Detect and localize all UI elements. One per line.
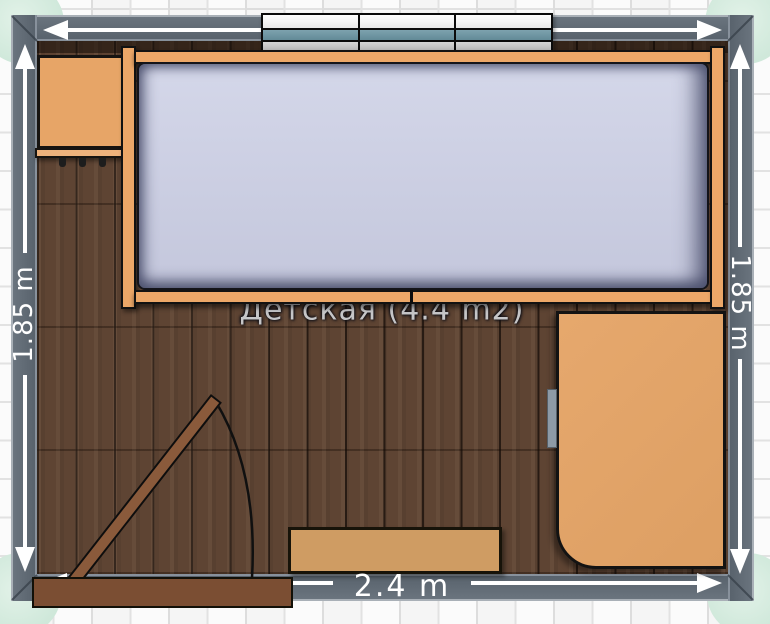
bed-mattress [137,62,709,290]
dimension-label-left: 1.85 m [9,265,39,362]
bed[interactable] [121,46,725,309]
shelf-cell [360,15,455,28]
wardrobe[interactable] [556,311,726,569]
bed-headboard [121,46,136,309]
bed-footboard [710,46,725,309]
low-shelf[interactable] [288,527,502,574]
shelf-cell [360,30,455,40]
coat-hook [79,158,86,167]
door-threshold[interactable] [32,577,293,608]
wall-cabinet[interactable] [37,55,126,149]
coat-hook [99,158,106,167]
cabinet-hook-rail[interactable] [35,148,128,158]
dimension-label-bottom: 2.4 m [354,569,450,604]
shelf-cell [263,30,358,40]
shelf-cell [456,30,551,40]
bed-rail-bottom [134,290,712,304]
floor-plan-canvas: Детская (4.4 m2) [0,0,770,624]
coat-hook [59,158,66,167]
bed-rail-seam [410,290,413,304]
shelf-cell [263,15,358,28]
dimension-label-right: 1.85 m [725,254,755,351]
shelf-cell [456,15,551,28]
wardrobe-handle[interactable] [547,389,557,448]
